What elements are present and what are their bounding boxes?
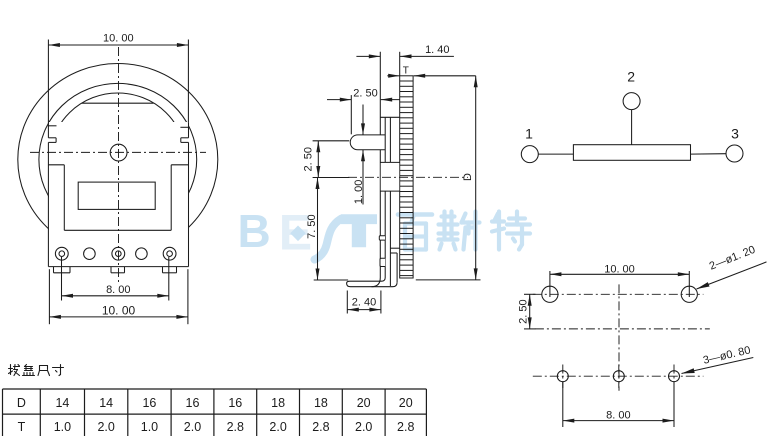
svg-text:10. 00: 10. 00 (102, 304, 136, 318)
svg-text:1. 00: 1. 00 (353, 180, 365, 204)
svg-text:2.0: 2.0 (97, 420, 114, 434)
svg-text:2: 2 (627, 69, 635, 85)
svg-text:2.0: 2.0 (184, 420, 201, 434)
svg-text:2.8: 2.8 (312, 420, 329, 434)
svg-text:1. 40: 1. 40 (425, 44, 449, 56)
svg-text:3: 3 (731, 126, 739, 142)
svg-text:2. 50: 2. 50 (302, 147, 314, 171)
svg-text:8. 00: 8. 00 (606, 409, 630, 421)
svg-text:8. 00: 8. 00 (106, 284, 130, 296)
svg-text:T: T (403, 66, 409, 77)
svg-text:20: 20 (357, 396, 371, 410)
svg-text:18: 18 (314, 396, 328, 410)
svg-text:16: 16 (186, 396, 200, 410)
svg-text:20: 20 (399, 396, 413, 410)
svg-text:18: 18 (271, 396, 285, 410)
svg-text:1.0: 1.0 (54, 420, 71, 434)
svg-text:T: T (18, 420, 26, 434)
svg-text:2.0: 2.0 (269, 420, 286, 434)
svg-text:2.8: 2.8 (227, 420, 244, 434)
svg-text:10. 00: 10. 00 (103, 33, 134, 45)
svg-text:2.0: 2.0 (355, 420, 372, 434)
svg-text:10. 00: 10. 00 (604, 263, 635, 275)
svg-text:2. 50: 2. 50 (517, 299, 529, 323)
svg-text:1: 1 (525, 126, 533, 142)
svg-text:2. 50: 2. 50 (353, 88, 377, 100)
svg-text:2.8: 2.8 (397, 420, 414, 434)
svg-text:D: D (462, 173, 474, 181)
svg-text:1.0: 1.0 (141, 420, 158, 434)
svg-text:16: 16 (142, 396, 156, 410)
svg-text:2. 40: 2. 40 (352, 296, 376, 308)
svg-text:14: 14 (99, 396, 113, 410)
svg-text:16: 16 (228, 396, 242, 410)
svg-text:B: B (238, 205, 271, 257)
svg-text:D: D (17, 396, 26, 410)
svg-text:14: 14 (55, 396, 69, 410)
